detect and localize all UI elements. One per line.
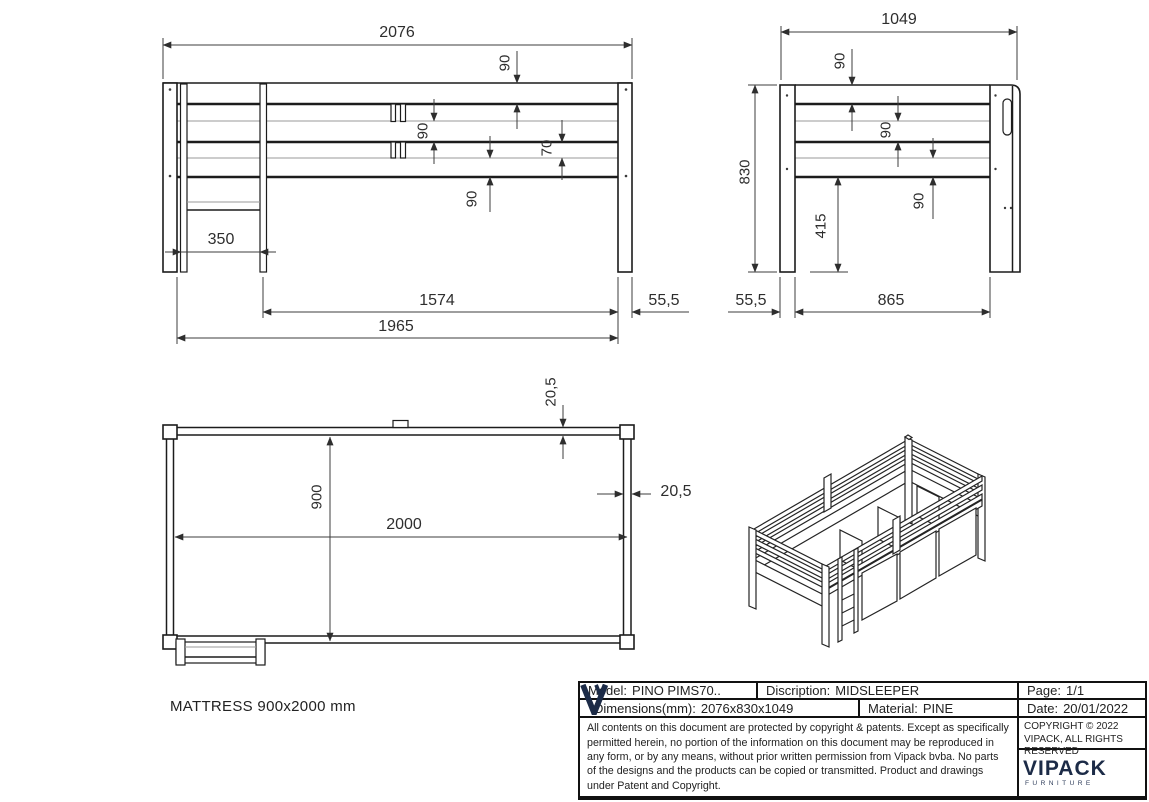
side-left-post [780,85,795,272]
iso-ladder-stile-2 [854,548,858,633]
dim-front-rail-top: 90 [497,55,514,72]
dim-top-length: 2000 [386,516,422,533]
headboard-handle-slot [1003,99,1012,135]
isometric-view [749,435,985,647]
discription-value: MIDSLEEPER [835,683,919,698]
page-label: Page: [1027,683,1061,698]
mattress-note: MATTRESS 900x2000 mm [170,698,356,715]
top-view-tab [393,421,408,428]
ladder-stile-right [260,84,267,272]
dim-side-inner-span: 865 [878,292,905,309]
page-value: 1/1 [1066,683,1084,698]
top-view-post-tr [620,425,634,439]
top-view-post-tl [163,425,177,439]
dim-side-height: 830 [737,159,754,184]
technical-drawing-page: 2076 90 90 70 90 350 1574 55,5 1965 [0,0,1149,802]
dim-front-rail-mid: 90 [415,123,432,140]
dim-side-rail-mid: 90 [878,122,895,139]
title-block: Model: PINO PIMS70.. Discription: MIDSLE… [578,681,1147,800]
date-value: 20/01/2022 [1063,701,1128,716]
discription-label: Discription: [766,683,830,698]
top-view-post-br [620,635,634,649]
date-cell: Date: 20/01/2022 [1019,700,1145,718]
top-view: 900 2000 20,5 20,5 [163,377,692,665]
dim-front-rail-low: 90 [464,191,481,208]
dim-front-overhang: 55,5 [648,292,679,309]
top-view-post-bl [163,635,177,649]
vipack-logo: VIPACK FURNITURE [1019,750,1145,796]
dim-side-clearance: 415 [813,213,830,238]
dim-front-ladder-width: 350 [208,231,235,248]
top-view-ladder [176,642,265,663]
dimensions-cell: Dimensions(mm): 2076x830x1049 [580,700,860,718]
front-left-post [163,83,177,272]
page-cell: Page: 1/1 [1019,683,1145,700]
dim-front-total-width: 2076 [379,24,415,41]
date-label: Date: [1027,701,1058,716]
dimensions-value: 2076x830x1049 [701,701,794,716]
material-value: PINE [923,701,953,716]
dim-front-gap: 70 [539,140,556,157]
model-value: PINO PIMS70.. [632,683,721,698]
side-view: 1049 830 90 90 90 415 55,5 865 [728,11,1020,318]
discription-cell: Discription: MIDSLEEPER [758,683,1019,700]
material-cell: Material: PINE [860,700,1019,718]
vipack-logo-mark [580,683,614,715]
dim-side-rail-top: 90 [832,53,849,70]
legal-text: All contents on this document are protec… [580,718,1019,796]
front-view: 2076 90 90 70 90 350 1574 55,5 1965 [163,24,689,344]
dim-side-total-depth: 1049 [881,11,917,28]
dim-side-rail-low: 90 [911,193,928,210]
brand-name: VIPACK [1023,758,1107,779]
dim-top-thickness-top: 20,5 [543,377,560,406]
iso-ladder-stile-1 [838,557,842,642]
dim-side-post-offset: 55,5 [735,292,766,309]
dim-top-width: 900 [309,484,326,509]
material-label: Material: [868,701,918,716]
dim-top-thickness-side: 20,5 [660,483,691,500]
dim-front-frame-length: 1965 [378,318,414,335]
dim-front-span: 1574 [419,292,455,309]
brand-subtitle: FURNITURE [1023,781,1107,788]
copyright-notice: COPYRIGHT © 2022 VIPACK, ALL RIGHTS RESE… [1019,718,1145,750]
front-right-post [618,83,632,272]
ladder-stile-left [181,84,188,272]
